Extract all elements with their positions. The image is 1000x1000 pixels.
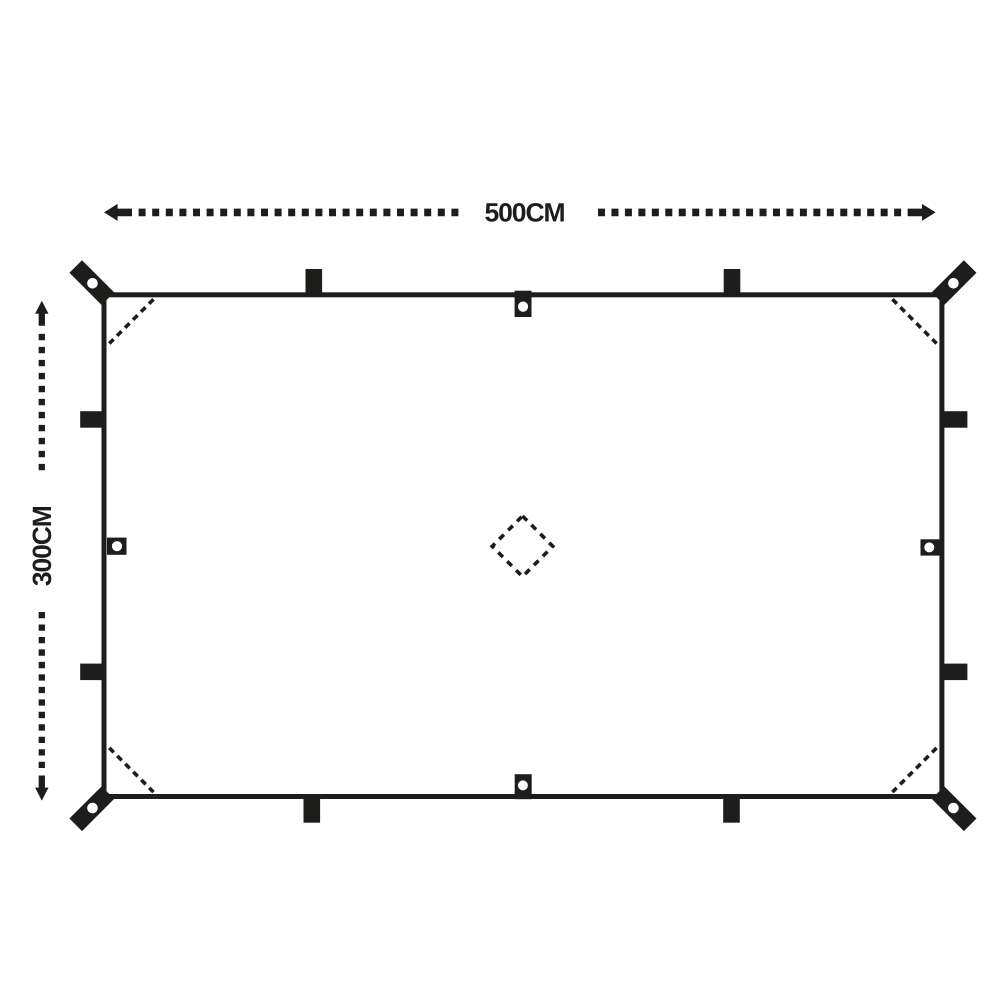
svg-text:300CM: 300CM — [27, 506, 57, 586]
svg-text:500CM: 500CM — [485, 198, 565, 228]
